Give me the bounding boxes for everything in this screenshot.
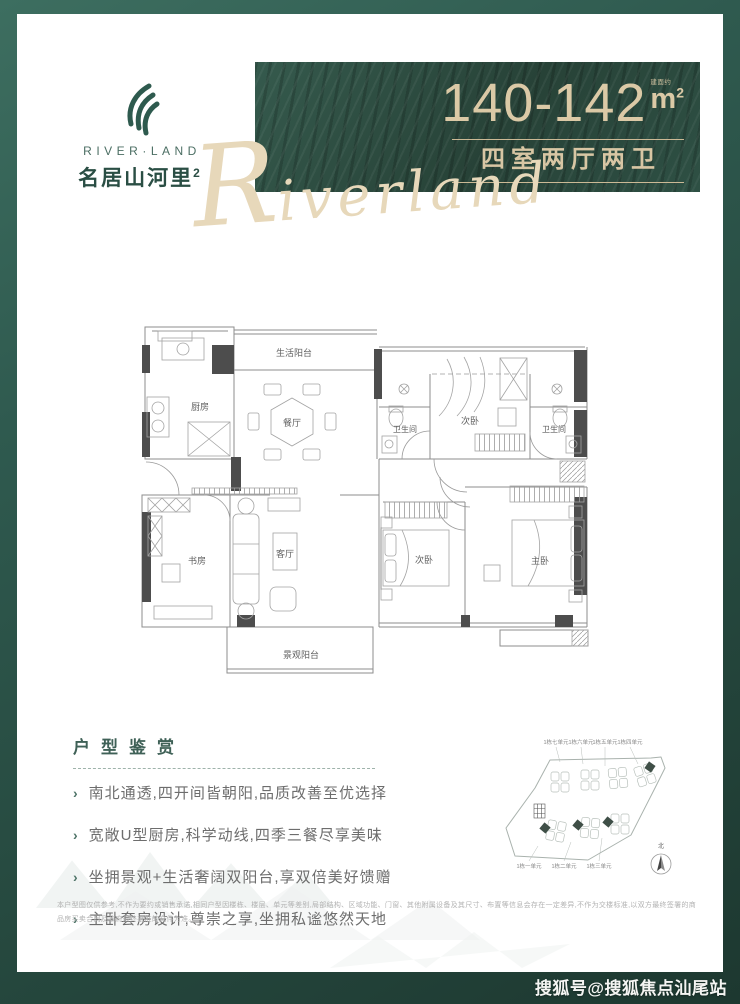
unit-label: 1栋二单元: [551, 862, 577, 870]
room-label-study: 书房: [188, 555, 206, 566]
room-label-bath-left: 卫生间: [393, 424, 417, 434]
entrance-grid: [534, 804, 545, 818]
building-clusters: [545, 763, 656, 843]
sohu-watermark: 搜狐号@搜狐焦点汕尾站: [535, 974, 727, 999]
section-title: 户型鉴赏: [73, 733, 483, 758]
unit-label: 1栋七单元: [543, 738, 569, 746]
area-row: 140-142建面约m2: [441, 76, 684, 130]
brand-logo: RIVER·LAND 名居山河里2: [52, 82, 228, 192]
area-unit: 建面约m2: [650, 80, 684, 114]
room-label-bath-right: 卫生间: [542, 424, 566, 434]
unit-m: m: [650, 83, 676, 115]
banner-divider: [452, 139, 684, 140]
feature-text: 坐拥景观+生活奢阔双阳台,享双倍美好馈赠: [89, 869, 392, 887]
arrow-bullet-icon: ›: [73, 785, 79, 802]
arrow-bullet-icon: ›: [73, 869, 79, 886]
area-banner-content: 140-142建面约m2 四室两厅两卫: [441, 76, 684, 190]
list-item: ›南北通透,四开间皆朝阳,品质改善至优选择: [73, 785, 483, 803]
arrow-bullet-icon: ›: [73, 827, 79, 844]
unit-label: 1栋五单元: [592, 738, 618, 746]
leaf-logo-icon: [117, 82, 163, 138]
room-label-bedroom-top: 次卧: [461, 415, 479, 426]
room-label-master: 主卧: [531, 555, 549, 566]
feature-text: 南北通透,四开间皆朝阳,品质改善至优选择: [89, 785, 387, 803]
dashed-divider: [73, 768, 375, 769]
area-prefix: 建面约: [650, 80, 684, 87]
banner-divider: [452, 182, 684, 183]
brand-name-cn: 名居山河里2: [52, 162, 228, 192]
room-label-dining: 餐厅: [283, 417, 301, 428]
area-range: 140-142: [441, 73, 646, 133]
unit-label: 1栋一单元: [516, 862, 542, 870]
compass-icon: [651, 854, 671, 874]
brand-cn-text: 名居山河里: [78, 167, 193, 190]
feature-text: 宽敞U型厨房,科学动线,四季三餐尽享美味: [89, 827, 383, 845]
poster-frame: RIVER·LAND 名居山河里2 140-142建面约m2 四室两厅两卫 Ri…: [0, 0, 740, 1004]
area-unit-symbol: m2: [650, 86, 684, 114]
room-label-living: 客厅: [276, 548, 294, 559]
layout-type: 四室两厅两卫: [452, 147, 684, 173]
site-plan: 1栋七单元 1栋六单元 1栋五单元 1栋四单元 1栋一单元 1栋二单元 1栋三单…: [498, 734, 700, 886]
unit-sup: 2: [676, 84, 684, 100]
unit-label: 1栋三单元: [586, 862, 612, 870]
compass-north-label: 北: [658, 842, 664, 850]
plan-furniture: [147, 331, 588, 646]
list-item: ›宽敞U型厨房,科学动线,四季三餐尽享美味: [73, 827, 483, 845]
room-label-bedroom-bottom: 次卧: [415, 554, 433, 565]
room-label-kitchen: 厨房: [191, 401, 209, 412]
unit-label: 1栋四单元: [617, 738, 643, 746]
brand-name-en: RIVER·LAND: [52, 144, 228, 158]
list-item: ›坐拥景观+生活奢阔双阳台,享双倍美好馈赠: [73, 869, 483, 887]
floor-plan: 厨房 生活阳台 餐厅 次卧 卫生间 卫生间 书房 客厅 景观阳台 次卧 主卧: [102, 312, 642, 704]
disclaimer-text: 本户型图仅供参考,不作为要约或销售承诺,相同户型因楼栋、楼层、单元等差别,局部结…: [57, 899, 697, 926]
label-leaders: [529, 747, 638, 861]
brand-cn-sup: 2: [193, 166, 202, 180]
unit-label: 1栋六单元: [568, 738, 594, 746]
room-label-life-balcony: 生活阳台: [276, 347, 312, 358]
area-banner: 140-142建面约m2 四室两厅两卫: [255, 62, 700, 192]
room-label-view-balcony: 景观阳台: [283, 649, 319, 660]
